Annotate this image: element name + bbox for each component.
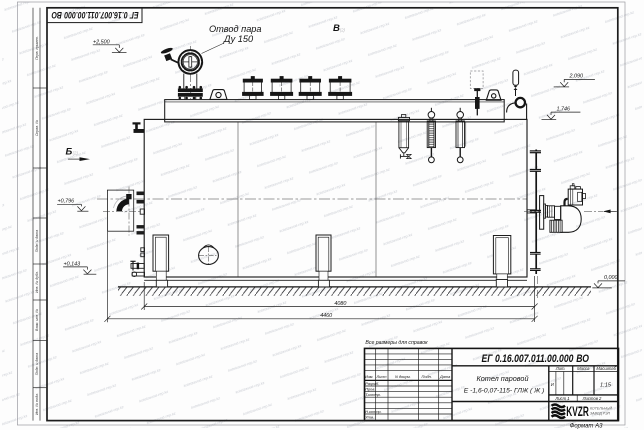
svg-text:Пров.: Пров. [365, 387, 375, 392]
svg-text:Б: Б [66, 147, 73, 158]
svg-text:Перв. примен.: Перв. примен. [35, 36, 39, 60]
svg-text:4080: 4080 [334, 301, 346, 307]
svg-text:Масса: Масса [577, 366, 590, 371]
svg-text:ЕГ 0.16.007.011.00.000 ВО: ЕГ 0.16.007.011.00.000 ВО [482, 353, 590, 365]
svg-text:Т.контр.: Т.контр. [365, 392, 381, 397]
svg-text:Инв. № дубл.: Инв. № дубл. [35, 271, 39, 293]
svg-text:Лист 1: Лист 1 [554, 396, 569, 401]
svg-text:Подп. и дата: Подп. и дата [35, 230, 39, 253]
svg-text:ЗАВОД РЭП: ЗАВОД РЭП [590, 412, 611, 416]
svg-text:Масштаб: Масштаб [596, 366, 616, 371]
svg-text:+0,143: +0,143 [64, 261, 81, 267]
svg-text:N докум.: N докум. [395, 374, 411, 379]
svg-text:2,090: 2,090 [569, 74, 584, 80]
svg-text:4460: 4460 [320, 313, 332, 319]
svg-text:Дата: Дата [439, 374, 451, 379]
svg-text:1,746: 1,746 [557, 106, 571, 112]
svg-text:Инв. № подл.: Инв. № подл. [35, 393, 39, 415]
svg-text:+0,796: +0,796 [58, 199, 75, 205]
svg-text:КОТЕЛЬНЫЙ: КОТЕЛЬНЫЙ [590, 407, 613, 411]
svg-text:Лист: Лист [376, 374, 388, 379]
svg-text:Лит.: Лит. [555, 366, 566, 371]
svg-text:Листов 2: Листов 2 [582, 396, 602, 401]
svg-text:Взам. инв. №: Взам. инв. № [35, 309, 39, 331]
svg-text:Н.контр.: Н.контр. [365, 409, 381, 414]
svg-text:(2): (2) [73, 151, 79, 156]
svg-text:Ду 150: Ду 150 [223, 34, 254, 44]
svg-text:Разраб.: Разраб. [365, 381, 379, 386]
svg-text:1:15: 1:15 [600, 382, 612, 388]
svg-text:Формат А3: Формат А3 [570, 423, 603, 429]
svg-text:0,000: 0,000 [604, 275, 618, 281]
svg-text:Все размеры для справок: Все размеры для справок [365, 340, 428, 346]
svg-text:Утв.: Утв. [365, 415, 374, 420]
svg-text:Подп. и дата: Подп. и дата [35, 353, 39, 376]
svg-text:Справ. №: Справ. № [35, 120, 39, 136]
svg-text:Отвод пара: Отвод пара [209, 24, 262, 34]
svg-text:Е -1,6-0,07-115- ГЛЖ ( Ж ): Е -1,6-0,07-115- ГЛЖ ( Ж ) [464, 387, 545, 394]
svg-text:(2): (2) [340, 27, 346, 32]
svg-text:KVZR: KVZR [566, 404, 589, 419]
svg-text:Котел паровой: Котел паровой [477, 374, 529, 383]
svg-text:Подп.: Подп. [422, 374, 432, 379]
svg-text:Изм.: Изм. [365, 374, 373, 379]
svg-text:ЕГ 0.16.007.011.00.000 ВО: ЕГ 0.16.007.011.00.000 ВО [51, 10, 138, 20]
svg-text:И: И [551, 382, 554, 387]
